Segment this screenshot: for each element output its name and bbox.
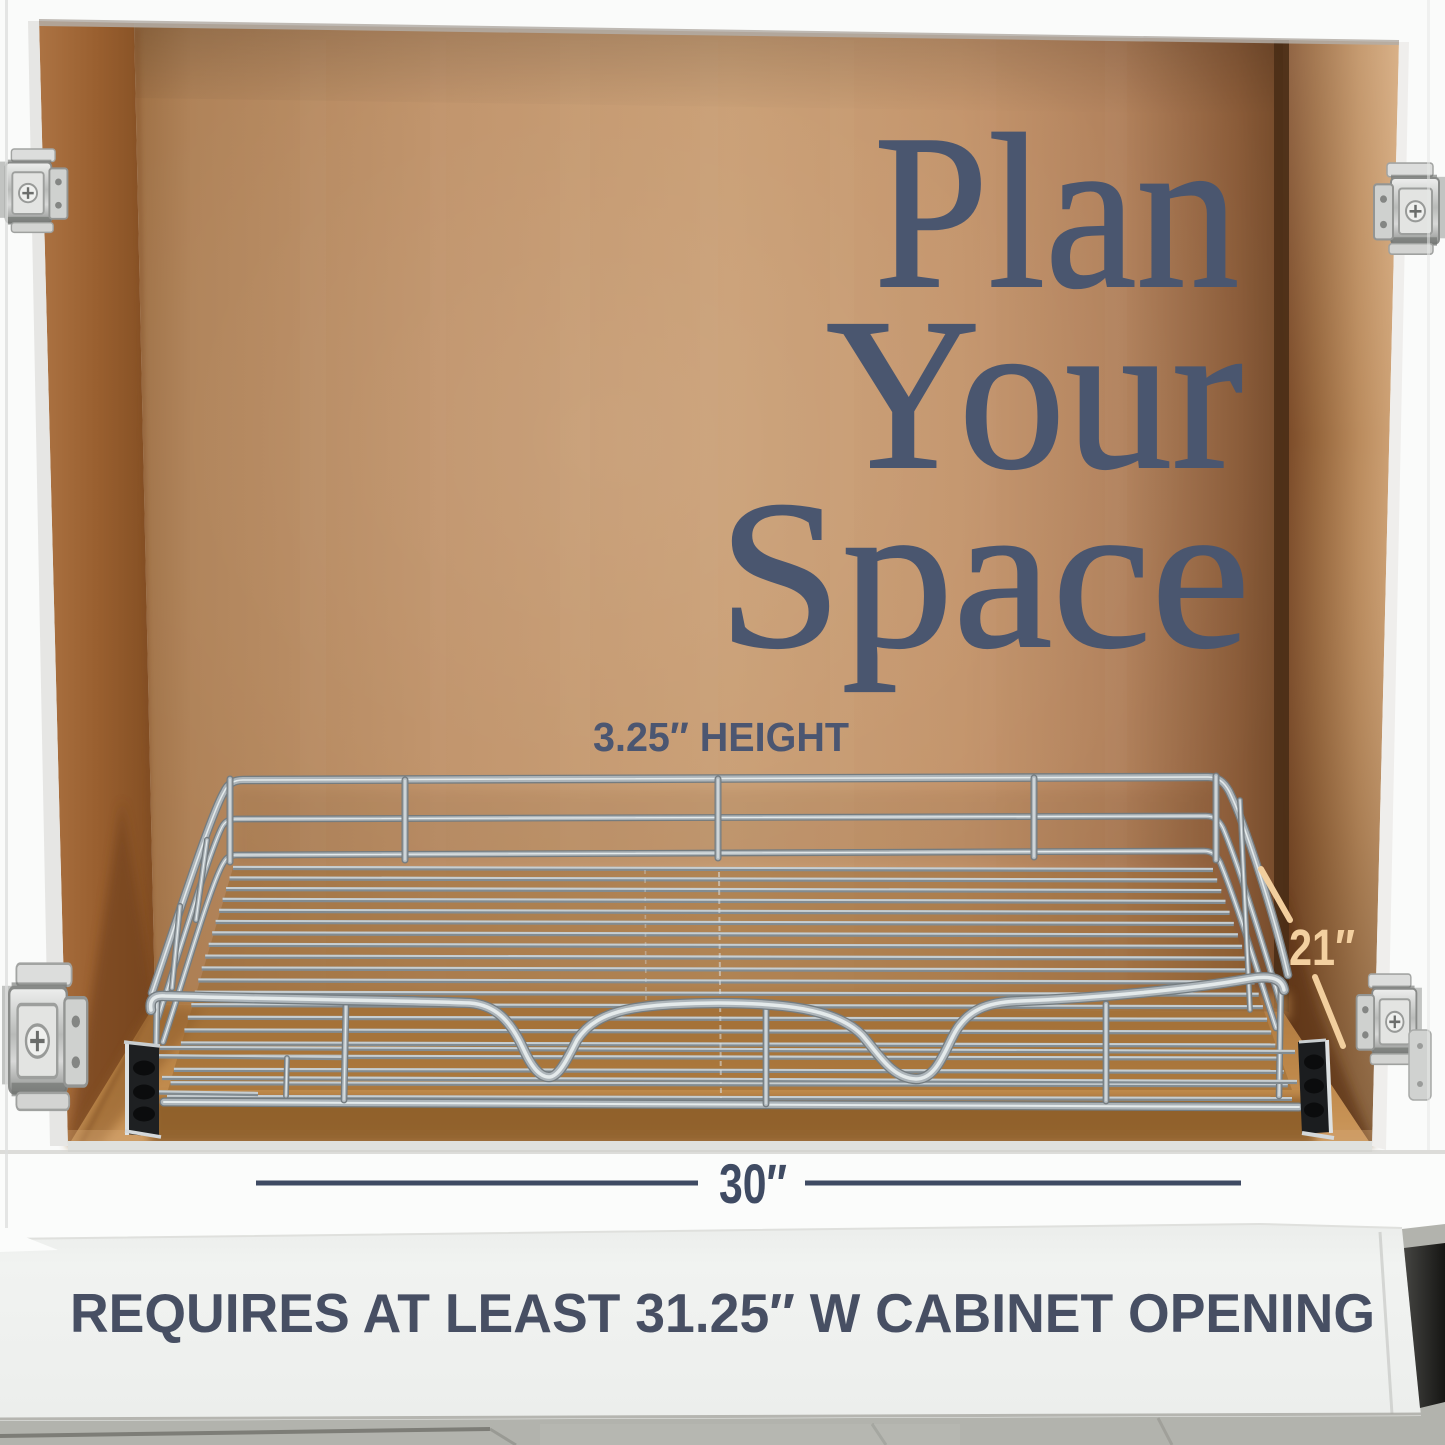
svg-text:3.25″ HEIGHT: 3.25″ HEIGHT xyxy=(593,714,849,760)
svg-text:REQUIRES AT LEAST 31.25″ W CAB: REQUIRES AT LEAST 31.25″ W CABINET OPENI… xyxy=(70,1282,1375,1344)
svg-text:30″: 30″ xyxy=(719,1152,787,1215)
svg-text:Space: Space xyxy=(718,457,1250,692)
svg-text:21″: 21″ xyxy=(1289,919,1355,976)
